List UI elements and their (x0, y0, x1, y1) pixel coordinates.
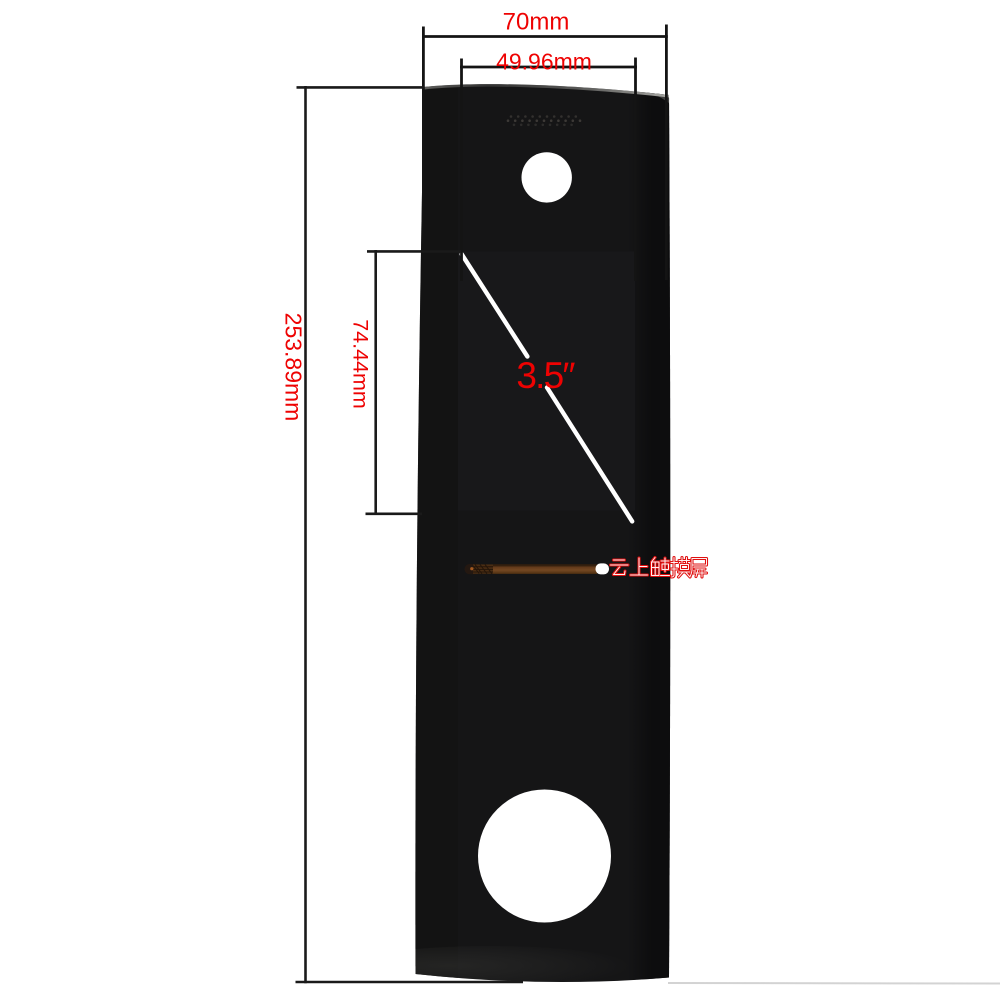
svg-text:49.96mm: 49.96mm (496, 49, 592, 75)
svg-text:3.5″: 3.5″ (516, 355, 575, 396)
svg-text:74.44mm: 74.44mm (349, 319, 373, 409)
svg-text:70mm: 70mm (503, 9, 570, 36)
svg-text:253.89mm: 253.89mm (281, 313, 307, 422)
